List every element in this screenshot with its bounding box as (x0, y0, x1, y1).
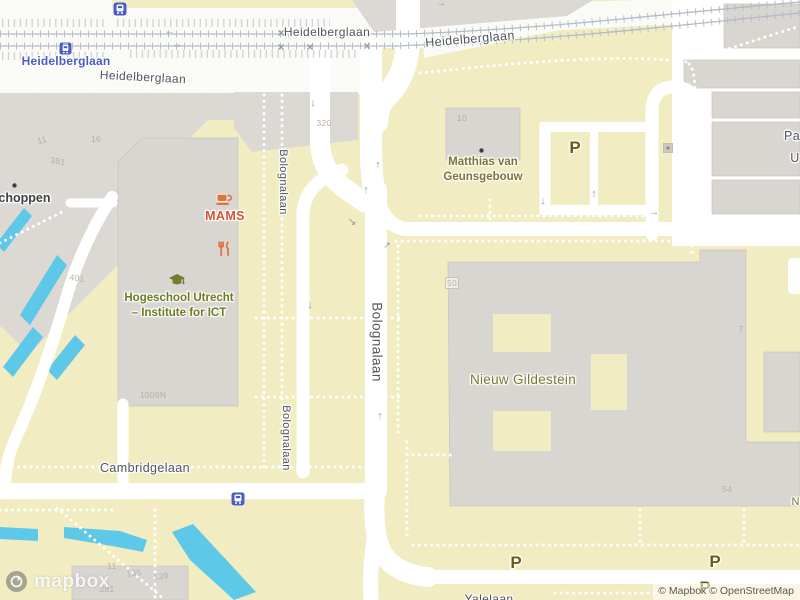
mapbox-wordmark: mapbox (34, 571, 110, 593)
mapbox-logo-icon (5, 570, 28, 593)
map-canvas[interactable]: HeidelberglaanHeidelberglaanHeidelbergla… (0, 0, 800, 600)
map-attribution[interactable]: © Mapbox © OpenStreetMap (653, 583, 800, 600)
map-geometry (0, 0, 800, 600)
mapbox-logo[interactable]: mapbox (5, 570, 110, 593)
